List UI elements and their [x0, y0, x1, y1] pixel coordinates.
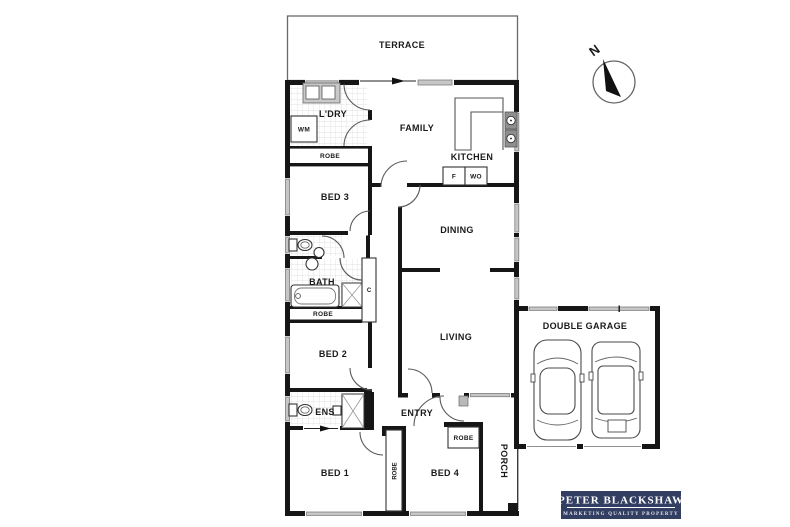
room-label-bed3: BED 3: [321, 192, 349, 202]
room-label-bath: BATH: [309, 277, 335, 287]
toilet-icon: [289, 239, 312, 251]
kitchen-fixtures: [443, 98, 517, 185]
logo-tagline: MARKETING QUALITY PROPERTY: [563, 512, 679, 517]
agency-logo: PETER BLACKSHAW MARKETING QUALITY PROPER…: [558, 491, 684, 519]
label-robe-bath: ROBE: [313, 311, 333, 318]
basin-icon: [306, 258, 318, 270]
car-icon: [589, 342, 643, 438]
room-label-dining: DINING: [440, 225, 474, 235]
garage-cars: [531, 340, 643, 440]
room-label-porch: PORCH: [499, 444, 509, 478]
label-robe-bed4: ROBE: [454, 435, 474, 442]
room-label-laundry: L'DRY: [319, 109, 347, 119]
logo-agency-name: PETER BLACKSHAW: [558, 495, 684, 507]
label-robe-bed1: ROBE: [393, 462, 399, 479]
label-wm: WM: [298, 127, 310, 134]
label-robe-laundry: ROBE: [320, 153, 340, 160]
compass-circle: [593, 61, 635, 103]
room-label-bed1: BED 1: [321, 468, 349, 478]
shower-icon: [342, 394, 364, 428]
bathtub-icon: [291, 285, 339, 307]
room-label-bed4: BED 4: [431, 468, 459, 478]
room-label-living: LIVING: [440, 332, 472, 342]
room-label-kitchen: KITCHEN: [451, 152, 493, 162]
basin-icon: [314, 248, 324, 258]
shower-icon: [342, 283, 362, 307]
floor-plan-page: N TERRACE L'DRY FAMILY KITCHEN BED 3 DIN…: [0, 0, 790, 527]
north-label: N: [586, 42, 602, 60]
room-label-entry: ENTRY: [401, 408, 433, 418]
room-label-family: FAMILY: [400, 123, 434, 133]
room-label-ens: ENS: [315, 407, 335, 417]
room-label-garage: DOUBLE GARAGE: [543, 321, 628, 331]
compass: N: [586, 42, 635, 103]
car-icon: [531, 340, 584, 440]
label-wall-oven: WO: [470, 174, 482, 181]
room-label-bed2: BED 2: [319, 349, 347, 359]
kitchen-bench-icon: [455, 98, 503, 150]
toilet-icon: [289, 404, 312, 416]
room-label-terrace: TERRACE: [379, 40, 425, 50]
label-fridge: F: [452, 174, 456, 181]
floor-plan-drawing: N TERRACE L'DRY FAMILY KITCHEN BED 3 DIN…: [0, 0, 790, 527]
label-cupboard: C: [367, 288, 372, 294]
